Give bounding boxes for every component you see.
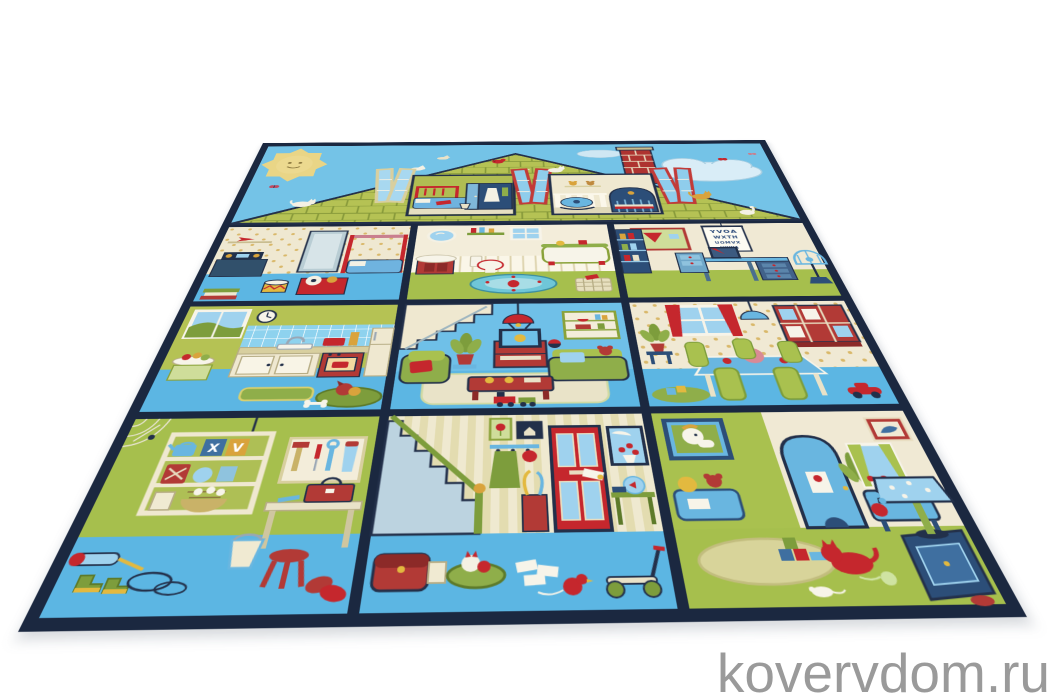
kids-bedroom-panel (193, 226, 411, 302)
tv-and-stand (494, 323, 547, 367)
watermark-text: kovervdom.ru (717, 640, 1050, 700)
product-photo-stage: YVOA WXTH UOMVX HYWA (0, 0, 1052, 700)
kitchen-rug (238, 387, 314, 400)
kitchen-window (184, 310, 250, 337)
attic-nursery (549, 174, 662, 214)
study-floor (623, 269, 841, 297)
dining-window (665, 304, 743, 336)
picture-house (517, 422, 542, 438)
playroom-panel (651, 411, 1009, 611)
bath-cup (578, 240, 587, 244)
wardrobe (465, 183, 512, 209)
hall-picture-window (607, 427, 647, 465)
play-rug: YVOA WXTH UOMVX HYWA (18, 140, 1027, 632)
cooking-pot (322, 338, 345, 346)
bathroom-window (511, 228, 540, 240)
towel (502, 187, 508, 196)
horse-portrait (664, 420, 732, 459)
sink (414, 255, 457, 274)
eye-chart-line-2: WXTH (713, 235, 740, 240)
toy-box (296, 275, 349, 294)
armchair (399, 351, 451, 384)
sofa (547, 345, 629, 380)
mirror (428, 230, 456, 242)
wall-shelf-unit (563, 312, 619, 339)
rug-artwork: YVOA WXTH UOMVX HYWA (18, 140, 1027, 632)
oval-bath-rug (470, 274, 557, 293)
book-stack (199, 288, 240, 299)
hallway-panel (359, 414, 677, 614)
attic-and-sky-panel (231, 143, 801, 223)
cloud-small (577, 150, 624, 158)
bathroom-panel (407, 224, 620, 299)
laptop (708, 247, 742, 259)
drum (261, 280, 289, 292)
attic-bedroom (407, 175, 515, 215)
pegboard (279, 437, 366, 482)
milk-carton (428, 562, 447, 583)
living-room-panel (390, 303, 640, 410)
book (612, 487, 627, 493)
open-book (687, 499, 711, 510)
drawer-cart (675, 253, 709, 273)
picture-flower (490, 419, 511, 440)
stove (317, 353, 364, 377)
lower-cabinets (228, 353, 320, 377)
workshop-panel: X V (39, 416, 380, 618)
eye-chart-line-3: UOMVX (714, 241, 741, 245)
eye-chart-line-1: YVOA (708, 230, 739, 235)
